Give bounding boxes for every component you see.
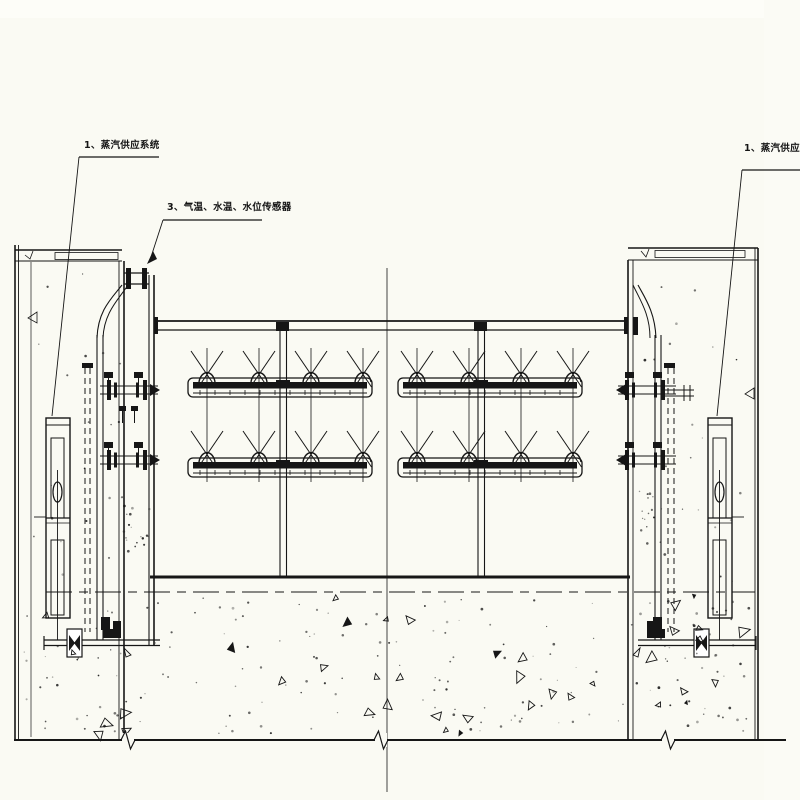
- drawing-canvas: 1、蒸汽供应系统 3、气温、水温、水位传感器 1、蒸汽供应系统: [0, 0, 800, 800]
- flange-connection: [100, 442, 160, 470]
- label-steam-supply-system-left: 1、蒸汽供应系统: [84, 140, 160, 152]
- anchor-fitting: [633, 617, 665, 657]
- leader-lines: [52, 157, 800, 416]
- steam-manifold-header: [398, 378, 582, 397]
- label-temperature-water-level-sensors: 3、气温、水温、水位传感器: [167, 202, 292, 214]
- flange-connections: [100, 372, 676, 470]
- steam-supply-unit-left: [34, 418, 70, 640]
- pier-mark-icon: [28, 312, 37, 323]
- pier-mark-icon: [745, 388, 754, 399]
- drain-pipe-left: [44, 617, 160, 657]
- steam-nozzle-field: [188, 348, 589, 482]
- flange-connection: [100, 372, 160, 400]
- steam-supply-unit-right: [708, 418, 744, 640]
- steam-header-beam: [154, 317, 628, 334]
- anchor-fitting: [101, 617, 131, 657]
- flange-connection: [616, 442, 676, 470]
- pier-right-ledge: [628, 248, 758, 260]
- steam-manifold-header: [398, 458, 582, 477]
- label-steam-supply-system-right: 1、蒸汽供应系统: [744, 143, 800, 155]
- shutoff-valve-icon: [694, 629, 709, 657]
- engineering-drawing: [0, 0, 800, 800]
